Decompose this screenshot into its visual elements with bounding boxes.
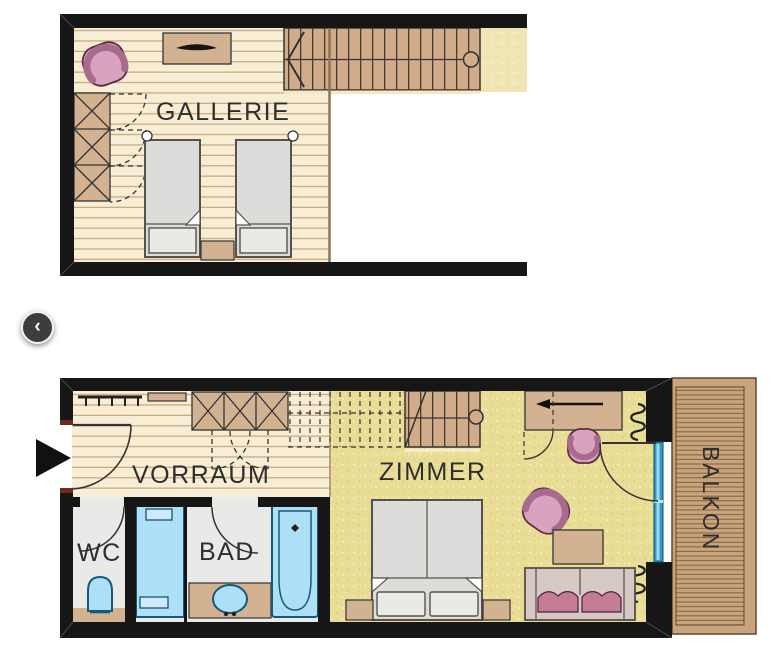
desk bbox=[525, 391, 622, 430]
stairs-newel-post bbox=[469, 410, 483, 424]
room-label-bad: BAD bbox=[199, 538, 255, 567]
reading-lamp bbox=[288, 131, 298, 141]
room-label-wc: WC bbox=[77, 539, 122, 568]
vanity-sink bbox=[189, 583, 271, 618]
reading-lamp bbox=[142, 131, 152, 141]
pillow bbox=[377, 592, 425, 616]
room-label-vorraum: VORRAUM bbox=[132, 461, 270, 490]
shower bbox=[136, 505, 184, 617]
gallerie-bed-left bbox=[142, 131, 200, 257]
gallerie-bed-right bbox=[236, 131, 298, 257]
stairs-newel-post bbox=[464, 52, 479, 67]
wall-shelf bbox=[148, 393, 186, 401]
room-label-gallerie: GALLERIE bbox=[156, 98, 290, 127]
lower-stairs bbox=[405, 391, 483, 452]
sofa bbox=[525, 568, 635, 620]
bathtub bbox=[272, 504, 318, 617]
floor-plan-page: GALLERIE VORRAUM ZIMMER WC BAD BALKON ‹ bbox=[0, 0, 774, 650]
pillow bbox=[149, 228, 196, 253]
upper-stairs bbox=[284, 28, 480, 94]
pillow bbox=[430, 592, 478, 616]
carousel-prev-button[interactable]: ‹ bbox=[21, 311, 54, 344]
lower-floor-plan bbox=[36, 378, 756, 638]
desk-chair bbox=[568, 429, 600, 463]
pillow bbox=[240, 228, 287, 253]
coffee-table bbox=[553, 530, 603, 564]
gallerie-dresser bbox=[163, 33, 231, 64]
open-area bbox=[480, 28, 527, 92]
nightstand-right bbox=[483, 600, 510, 620]
entrance-arrow-icon bbox=[36, 439, 71, 477]
door-frame-mark bbox=[60, 488, 73, 493]
toilet bbox=[88, 577, 112, 612]
room-label-zimmer: ZIMMER bbox=[379, 458, 487, 487]
door-frame-mark bbox=[60, 420, 73, 425]
gallerie-wardrobe bbox=[74, 93, 110, 201]
chevron-left-icon: ‹ bbox=[34, 317, 40, 336]
sink-basin bbox=[213, 585, 247, 613]
nightstand-left bbox=[346, 600, 373, 620]
vorraum-wardrobe bbox=[192, 392, 288, 430]
double-bed bbox=[372, 500, 482, 620]
gallerie-nightstand bbox=[201, 241, 234, 260]
upper-floor-plan bbox=[60, 14, 527, 276]
balcony-glass-door bbox=[654, 442, 663, 562]
room-label-balkon: BALKON bbox=[697, 446, 724, 551]
